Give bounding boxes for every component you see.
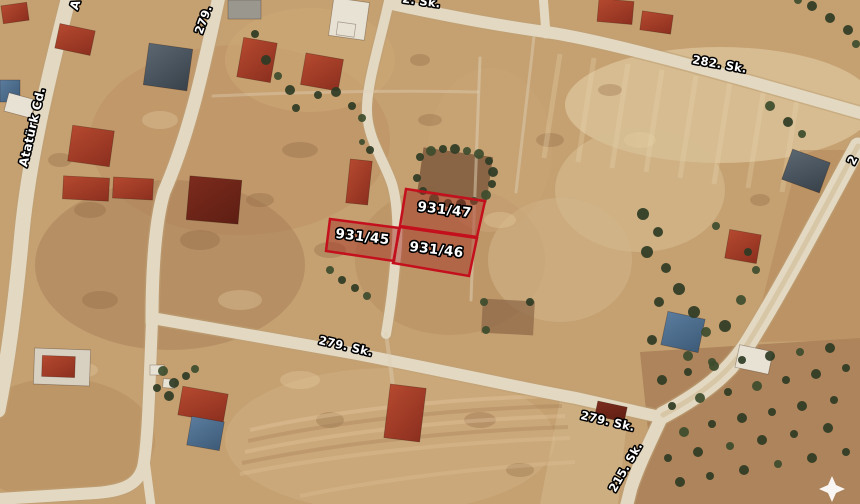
tree-icon: [724, 388, 732, 396]
tree-icon: [765, 101, 775, 111]
tree-icon: [737, 413, 747, 423]
tree-icon: [852, 40, 860, 48]
tree-icon: [738, 356, 746, 364]
tree-icon: [654, 297, 664, 307]
tree-icon: [783, 117, 793, 127]
tree-icon: [825, 13, 835, 23]
tree-icon: [719, 320, 731, 332]
tree-icon: [637, 208, 649, 220]
building-blue-roof: [187, 416, 225, 450]
tree-icon: [647, 335, 657, 345]
tree-icon: [450, 144, 460, 154]
tree-icon: [261, 55, 271, 65]
tree-icon: [413, 174, 421, 182]
satellite-map-view[interactable]: 931/45931/46931/47 Atatürk Cd.A279.2. Sk…: [0, 0, 860, 504]
tree-icon: [712, 222, 720, 230]
tree-icon: [169, 378, 179, 388]
building-red-roof: [68, 125, 115, 166]
tree-icon: [807, 1, 817, 11]
tree-icon: [693, 447, 703, 457]
tree-icon: [482, 326, 490, 334]
tree-icon: [439, 145, 447, 153]
tree-icon: [744, 248, 752, 256]
tree-icon: [825, 343, 835, 353]
tree-icon: [488, 180, 496, 188]
tree-icon: [664, 454, 672, 462]
tree-icon: [842, 448, 850, 456]
building-red-roof: [301, 53, 344, 91]
tree-icon: [768, 408, 776, 416]
building-slate-roof: [143, 43, 192, 91]
building-red-roof: [62, 176, 109, 201]
tree-icon: [668, 402, 676, 410]
tree-icon: [326, 266, 334, 274]
tree-icon: [706, 472, 714, 480]
tree-icon: [488, 167, 498, 177]
tree-icon: [683, 351, 693, 361]
tree-icon: [796, 348, 804, 356]
tree-icon: [739, 465, 749, 475]
tree-icon: [701, 327, 711, 337]
tree-icon: [661, 263, 671, 273]
tree-icon: [811, 369, 821, 379]
building-red-roof: [725, 229, 762, 263]
tree-icon: [684, 368, 692, 376]
tree-icon: [765, 351, 775, 361]
building-red-roof: [346, 159, 372, 205]
tree-icon: [182, 372, 190, 380]
tree-icon: [153, 384, 161, 392]
tree-icon: [673, 283, 685, 295]
tree-icon: [679, 427, 689, 437]
building-red-roof: [112, 177, 153, 200]
tree-icon: [164, 391, 174, 401]
tree-icon: [331, 87, 341, 97]
tree-icon: [736, 295, 746, 305]
tree-icon: [675, 477, 685, 487]
tree-icon: [752, 266, 760, 274]
tree-icon: [774, 460, 782, 468]
tree-icon: [338, 276, 346, 284]
tree-icon: [790, 430, 798, 438]
tree-icon: [797, 401, 807, 411]
tree-icon: [843, 25, 853, 35]
tree-icon: [363, 292, 371, 300]
tree-icon: [351, 284, 359, 292]
tree-icon: [285, 85, 295, 95]
tree-icon: [416, 153, 424, 161]
building-blue-roof: [661, 311, 705, 352]
tree-icon: [158, 366, 168, 376]
tree-icon: [274, 72, 282, 80]
tree-icon: [798, 130, 806, 138]
tree-icon: [481, 190, 491, 200]
tree-icon: [358, 114, 366, 122]
tree-icon: [314, 91, 322, 99]
tree-icon: [842, 364, 850, 372]
tree-icon: [474, 149, 484, 159]
tree-icon: [641, 246, 653, 258]
tree-icon: [709, 361, 719, 371]
tree-icon: [251, 30, 259, 38]
tree-icon: [366, 146, 374, 154]
building-gray-roof: [228, 0, 261, 19]
tree-icon: [485, 157, 493, 165]
building-white-roof: [336, 22, 356, 37]
tree-icon: [708, 420, 716, 428]
building-red-roof: [384, 384, 426, 442]
tree-icon: [807, 453, 817, 463]
tree-icon: [782, 376, 790, 384]
tree-icon: [688, 306, 700, 318]
building-red-roof: [1, 2, 29, 23]
tree-icon: [695, 393, 705, 403]
tree-icon: [292, 104, 300, 112]
tree-icon: [653, 227, 663, 237]
building-red-roof: [597, 0, 634, 24]
tree-icon: [426, 146, 436, 156]
tree-icon: [480, 298, 488, 306]
tree-icon: [657, 375, 667, 385]
building-red-roof: [237, 37, 277, 82]
tree-icon: [823, 423, 833, 433]
tree-icon: [726, 442, 734, 450]
tree-icon: [526, 298, 534, 306]
tree-icon: [463, 147, 471, 155]
building-red-roof: [42, 355, 76, 377]
tree-icon: [757, 435, 767, 445]
tree-icon: [752, 381, 762, 391]
building-darkred-roof: [186, 176, 242, 224]
tree-icon: [191, 365, 199, 373]
building-red-roof: [640, 11, 673, 34]
tree-icon: [348, 102, 356, 110]
tree-icon: [830, 396, 838, 404]
tree-icon: [359, 139, 365, 145]
